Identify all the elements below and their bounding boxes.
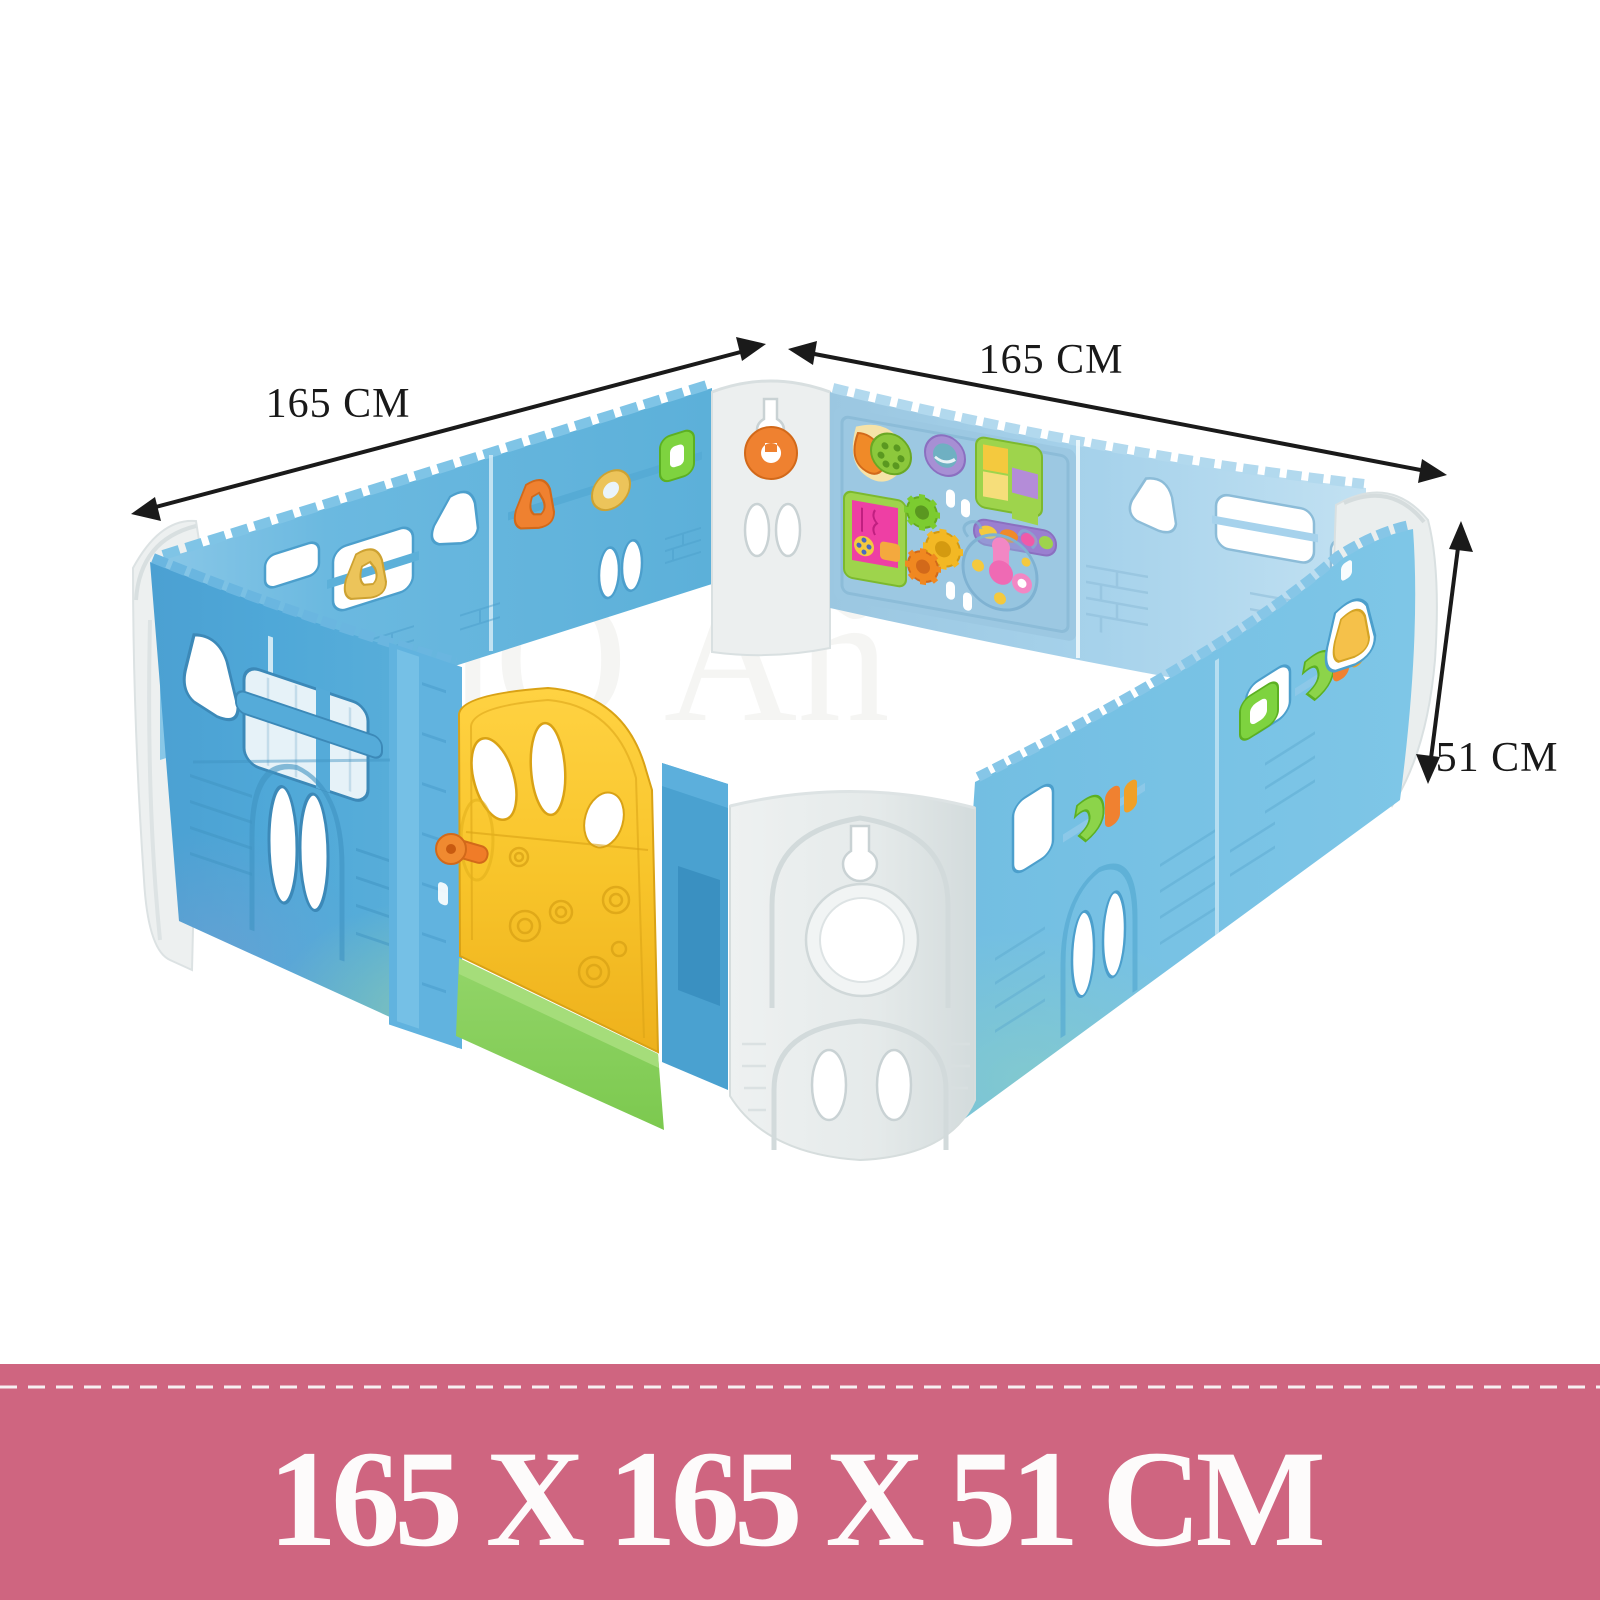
svg-text:165 CM: 165 CM bbox=[979, 337, 1124, 383]
svg-text:165 CM: 165 CM bbox=[266, 381, 411, 427]
svg-text:165 X 165 X 51 CM: 165 X 165 X 51 CM bbox=[268, 1422, 1322, 1575]
svg-text:51 CM: 51 CM bbox=[1436, 735, 1559, 781]
